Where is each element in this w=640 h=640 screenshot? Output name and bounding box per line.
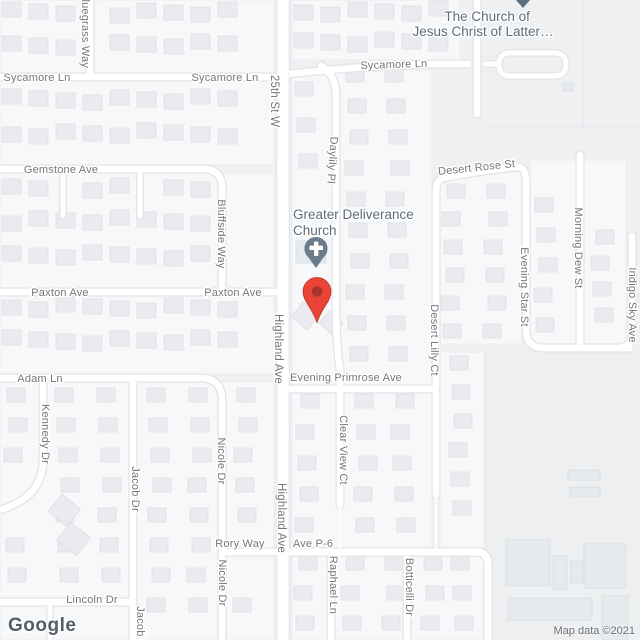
road-label-kennedy-dr: Kennedy Dr — [39, 404, 51, 464]
road-label-sycamore-ln-1: Sycamore Ln — [3, 72, 70, 84]
road-label-indigo-sky-ave: Indigo Sky Ave — [626, 267, 638, 342]
road-label-ave-p-6: Ave P-6 — [293, 538, 333, 550]
road-label-highland-ave-2: Highland Ave — [275, 483, 287, 553]
road-label-gemstone-ave: Gemstone Ave — [24, 164, 98, 176]
road-label-highland-ave-1: Highland Ave — [272, 314, 284, 384]
offscreen-pin-tail-icon[interactable] — [516, 0, 530, 8]
road-label-botticelli-dr: Botticelli Dr — [403, 558, 415, 616]
road-label-paxton-ave-1: Paxton Ave — [31, 287, 88, 299]
road-label-bluegrass-way: Bluegrass Way — [79, 0, 91, 68]
road-label-desert-lilly-ct: Desert Lilly Ct — [428, 304, 440, 375]
road-label-morning-dew-st: Morning Dew St — [572, 207, 584, 288]
road-label-raphael-ln: Raphael Ln — [327, 556, 339, 614]
road-label-clear-view-ct: Clear View Ct — [337, 415, 349, 485]
map-image[interactable]: Sycamore LnSycamore LnSycamore LnBluegra… — [0, 0, 640, 640]
road-label-bluffside-way: Bluffside Way — [215, 199, 227, 269]
road-label-evening-primrose-ave: Evening Primrose Ave — [290, 372, 402, 384]
road-label-jacob-dr-2: Jacob Dr — [134, 606, 146, 640]
road-label-nicole-dr-2: Nicole Dr — [216, 559, 228, 606]
road-label-sycamore-ln-2: Sycamore Ln — [191, 72, 258, 84]
road-label-evening-star-st: Evening Star St — [518, 247, 530, 326]
road-label-adam-ln: Adam Ln — [17, 373, 62, 385]
google-logo[interactable]: Google — [8, 615, 76, 637]
map-canvas[interactable]: Sycamore LnSycamore LnSycamore LnBluegra… — [0, 0, 640, 640]
road-label-paxton-ave-2: Paxton Ave — [204, 287, 261, 299]
road-label-25th-st-w: 25th St W — [268, 75, 280, 127]
road-label-lincoln-dr: Lincoln Dr — [66, 594, 118, 606]
road-label-nicole-dr-1: Nicole Dr — [215, 437, 227, 484]
road-label-jacob-dr-1: Jacob Dr — [129, 466, 141, 512]
road-label-rory-way: Rory Way — [215, 538, 265, 550]
road-label-sycamore-ln-3: Sycamore Ln — [360, 58, 427, 72]
map-attribution: Map data ©2021 — [554, 625, 636, 637]
